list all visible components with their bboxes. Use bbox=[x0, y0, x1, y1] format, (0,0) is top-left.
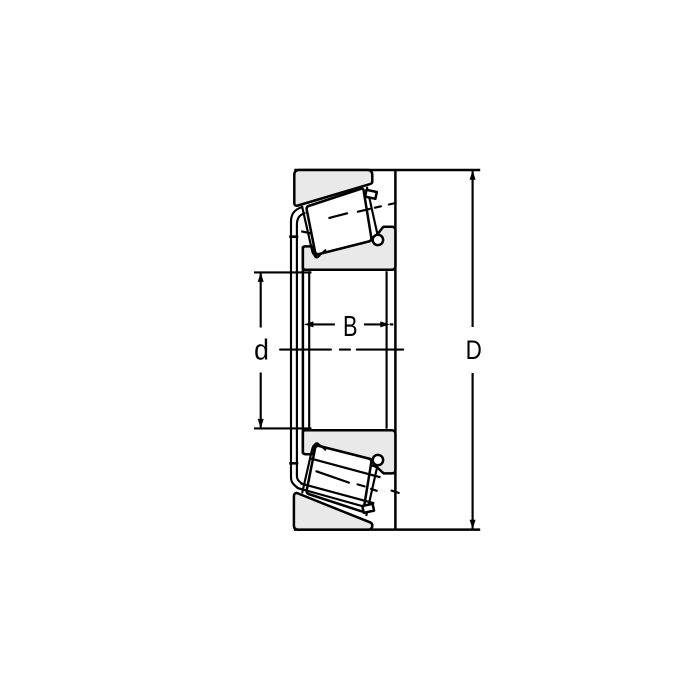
svg-text:B: B bbox=[343, 311, 358, 343]
svg-text:D: D bbox=[466, 335, 482, 365]
svg-text:d: d bbox=[254, 335, 269, 367]
